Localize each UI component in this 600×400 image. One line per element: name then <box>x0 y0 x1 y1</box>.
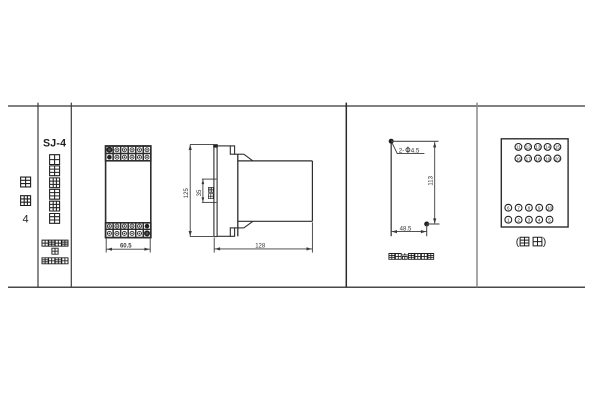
svg-text:19: 19 <box>545 156 551 161</box>
svg-text:128: 128 <box>255 244 266 250</box>
svg-text:12: 12 <box>526 145 532 150</box>
svg-text:9: 9 <box>538 206 541 211</box>
svg-text:4.5: 4.5 <box>411 147 420 154</box>
svg-text:(: ( <box>516 236 520 248</box>
svg-text:7: 7 <box>517 206 520 211</box>
svg-text:11: 11 <box>516 145 521 150</box>
svg-text:8: 8 <box>528 206 531 211</box>
svg-text:14: 14 <box>545 145 551 150</box>
svg-text:2: 2 <box>517 218 520 223</box>
svg-text:SJ-4: SJ-4 <box>43 137 66 149</box>
svg-text:4: 4 <box>23 213 29 225</box>
svg-text:6: 6 <box>507 206 510 211</box>
svg-text:4: 4 <box>538 218 541 223</box>
svg-text:10: 10 <box>547 206 553 211</box>
svg-text:125: 125 <box>184 188 190 199</box>
svg-text:35: 35 <box>197 189 203 196</box>
svg-text:13: 13 <box>535 145 541 150</box>
svg-text:1: 1 <box>507 218 510 223</box>
svg-text:5: 5 <box>548 218 551 223</box>
svg-text:17: 17 <box>526 156 532 161</box>
svg-text:2-: 2- <box>399 147 405 154</box>
svg-text:60.5: 60.5 <box>120 243 132 249</box>
svg-text:): ) <box>543 236 547 248</box>
svg-text:3: 3 <box>528 218 531 223</box>
svg-text:48.5: 48.5 <box>400 226 412 232</box>
svg-text:16: 16 <box>516 156 522 161</box>
svg-text:113: 113 <box>428 175 434 185</box>
svg-text:20: 20 <box>555 156 561 161</box>
svg-text:15: 15 <box>555 145 561 150</box>
svg-text:18: 18 <box>535 156 541 161</box>
